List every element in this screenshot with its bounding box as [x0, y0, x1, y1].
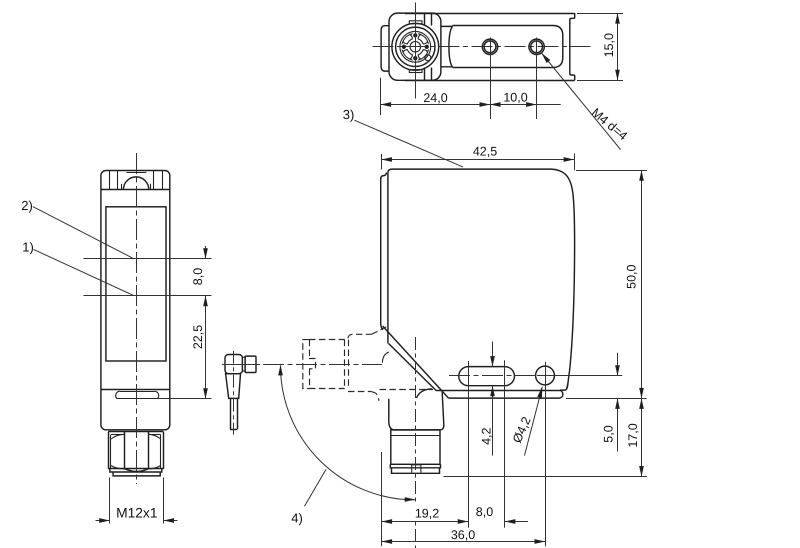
- svg-text:3): 3): [343, 107, 355, 122]
- svg-text:4,2: 4,2: [480, 427, 494, 444]
- svg-text:36,0: 36,0: [451, 528, 475, 542]
- svg-text:8,0: 8,0: [191, 268, 205, 285]
- svg-text:4): 4): [291, 510, 303, 525]
- svg-text:17,0: 17,0: [626, 423, 640, 447]
- svg-text:50,0: 50,0: [624, 264, 638, 288]
- svg-text:10,0: 10,0: [503, 90, 527, 104]
- svg-text:22,5: 22,5: [191, 325, 205, 349]
- svg-text:24,0: 24,0: [423, 91, 447, 105]
- svg-text:15,0: 15,0: [602, 33, 616, 57]
- svg-text:1): 1): [22, 239, 34, 254]
- svg-text:19,2: 19,2: [415, 506, 439, 520]
- svg-text:M12x1: M12x1: [116, 506, 157, 521]
- svg-text:8,0: 8,0: [476, 505, 493, 519]
- svg-text:5,0: 5,0: [601, 425, 615, 442]
- svg-text:42,5: 42,5: [473, 144, 497, 158]
- svg-text:2): 2): [21, 198, 33, 213]
